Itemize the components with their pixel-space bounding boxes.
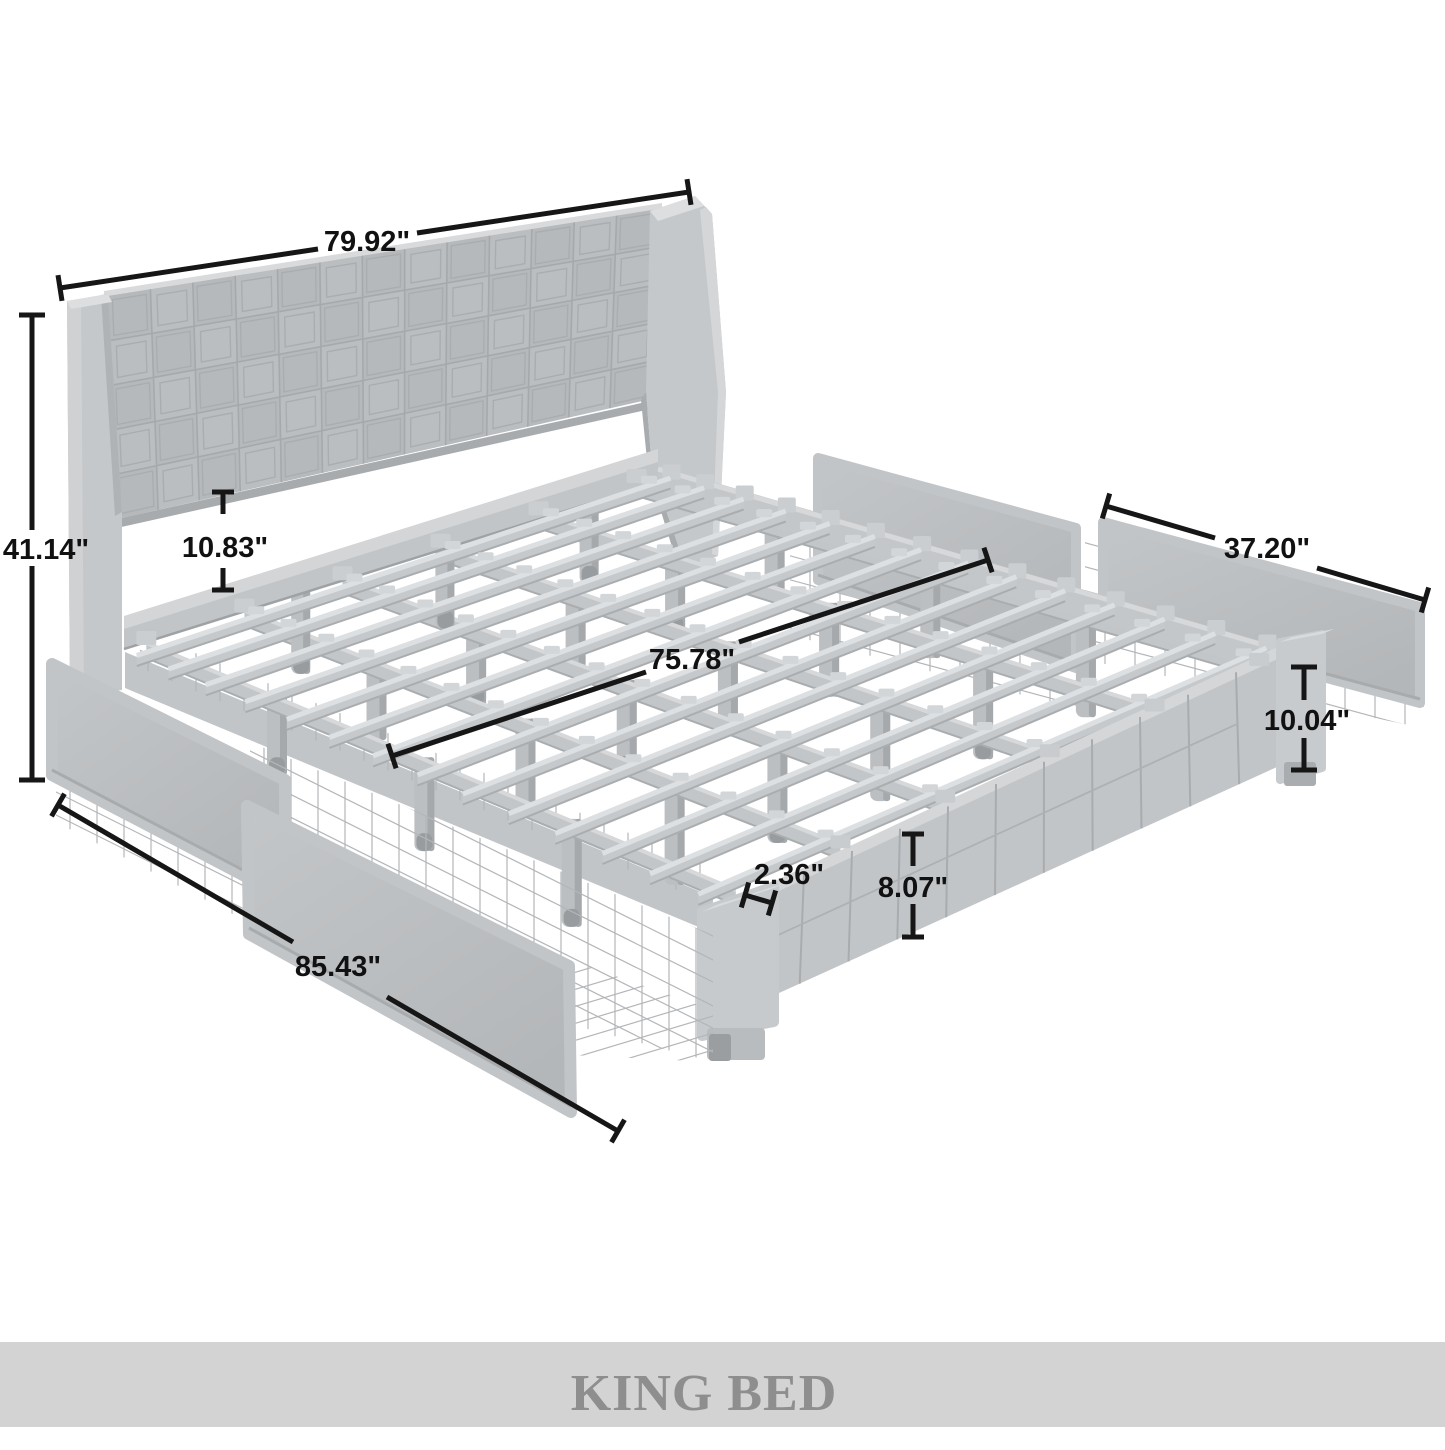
svg-text:10.83": 10.83" bbox=[182, 532, 268, 564]
svg-text:KING BED: KING BED bbox=[571, 1365, 838, 1422]
svg-text:37.20": 37.20" bbox=[1224, 533, 1310, 565]
svg-text:10.04": 10.04" bbox=[1264, 705, 1350, 737]
svg-text:75.78": 75.78" bbox=[649, 644, 735, 676]
svg-text:85.43": 85.43" bbox=[295, 951, 381, 983]
svg-text:2.36": 2.36" bbox=[754, 859, 824, 891]
svg-text:8.07": 8.07" bbox=[878, 872, 948, 904]
svg-text:41.14": 41.14" bbox=[3, 534, 89, 566]
svg-text:79.92": 79.92" bbox=[324, 226, 410, 258]
